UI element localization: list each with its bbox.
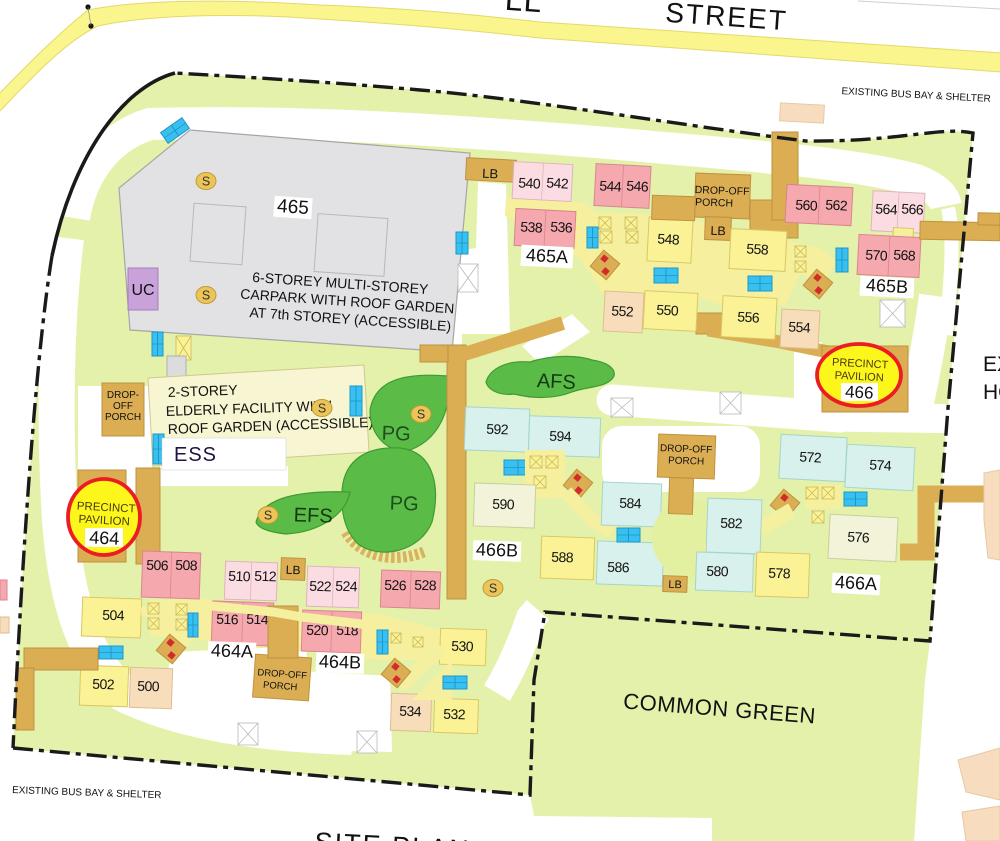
- svg-text:522: 522: [309, 578, 332, 595]
- svg-text:464B: 464B: [319, 651, 362, 672]
- svg-text:530: 530: [451, 638, 474, 655]
- svg-text:HOUSING: HOUSING: [983, 381, 1000, 404]
- svg-text:544: 544: [599, 177, 622, 194]
- svg-text:516: 516: [216, 611, 239, 628]
- svg-text:570: 570: [865, 246, 888, 263]
- svg-text:574: 574: [869, 456, 892, 473]
- svg-text:550: 550: [656, 301, 679, 318]
- svg-text:526: 526: [384, 577, 407, 594]
- svg-text:S: S: [318, 402, 326, 416]
- svg-text:580: 580: [706, 563, 729, 580]
- svg-text:566: 566: [901, 200, 924, 217]
- svg-text:512: 512: [254, 568, 277, 585]
- svg-text:LB: LB: [668, 579, 682, 591]
- svg-text:DROP-: DROP-: [107, 390, 139, 401]
- svg-text:PORCH: PORCH: [668, 455, 704, 467]
- svg-text:PG: PG: [389, 493, 419, 516]
- svg-text:506: 506: [146, 557, 169, 574]
- svg-text:542: 542: [546, 174, 569, 191]
- svg-text:532: 532: [443, 706, 466, 723]
- svg-text:LL: LL: [504, 0, 544, 19]
- svg-text:PG: PG: [381, 423, 411, 446]
- svg-text:LB: LB: [710, 224, 726, 239]
- svg-text:590: 590: [492, 496, 515, 513]
- svg-text:538: 538: [520, 218, 543, 235]
- svg-text:510: 510: [228, 568, 251, 585]
- svg-text:534: 534: [399, 703, 422, 720]
- svg-text:582: 582: [720, 515, 743, 532]
- svg-text:2-STOREY: 2-STOREY: [168, 382, 239, 400]
- svg-text:546: 546: [626, 177, 649, 194]
- svg-text:594: 594: [549, 428, 572, 445]
- svg-text:DROP-OFF: DROP-OFF: [660, 443, 713, 456]
- svg-text:464: 464: [89, 527, 120, 549]
- svg-text:584: 584: [619, 495, 642, 512]
- svg-text:LB: LB: [482, 166, 499, 182]
- svg-text:502: 502: [92, 676, 115, 693]
- svg-text:500: 500: [137, 678, 160, 695]
- svg-text:465A: 465A: [526, 245, 569, 267]
- svg-text:548: 548: [657, 230, 680, 247]
- svg-text:564: 564: [875, 200, 898, 217]
- svg-text:592: 592: [486, 421, 509, 438]
- svg-text:465B: 465B: [866, 275, 909, 297]
- svg-text:586: 586: [607, 559, 630, 576]
- svg-text:508: 508: [175, 557, 198, 574]
- svg-text:554: 554: [788, 318, 811, 335]
- svg-text:S: S: [489, 582, 497, 596]
- svg-text:560: 560: [795, 196, 818, 213]
- svg-text:466B: 466B: [476, 539, 519, 560]
- svg-text:EXISTING: EXISTING: [983, 353, 1000, 376]
- svg-text:S: S: [202, 289, 210, 303]
- svg-text:465: 465: [276, 196, 309, 219]
- svg-text:524: 524: [335, 578, 358, 595]
- svg-text:466A: 466A: [835, 572, 878, 594]
- svg-text:EFS: EFS: [293, 504, 333, 527]
- svg-text:504: 504: [102, 607, 125, 624]
- svg-text:S: S: [417, 408, 425, 422]
- svg-text:528: 528: [414, 577, 437, 594]
- svg-text:536: 536: [550, 218, 573, 235]
- svg-text:588: 588: [551, 549, 574, 566]
- svg-text:PORCH: PORCH: [695, 196, 733, 209]
- svg-text:AFS: AFS: [536, 370, 576, 394]
- svg-text:558: 558: [746, 240, 769, 257]
- svg-text:572: 572: [799, 448, 822, 465]
- svg-text:552: 552: [611, 302, 634, 319]
- svg-text:ESS: ESS: [174, 444, 217, 466]
- svg-text:556: 556: [737, 308, 760, 325]
- svg-text:S: S: [202, 175, 210, 189]
- svg-text:578: 578: [768, 565, 791, 582]
- svg-text:576: 576: [847, 528, 870, 545]
- svg-text:562: 562: [825, 196, 848, 213]
- svg-text:464A: 464A: [211, 640, 254, 661]
- svg-text:540: 540: [518, 174, 541, 191]
- svg-text:LB: LB: [286, 563, 301, 578]
- svg-text:OFF: OFF: [113, 401, 133, 412]
- svg-text:466: 466: [845, 382, 874, 402]
- svg-text:PORCH: PORCH: [105, 412, 141, 423]
- svg-text:S: S: [264, 509, 272, 523]
- svg-text:UC: UC: [131, 282, 154, 299]
- svg-text:568: 568: [893, 246, 916, 263]
